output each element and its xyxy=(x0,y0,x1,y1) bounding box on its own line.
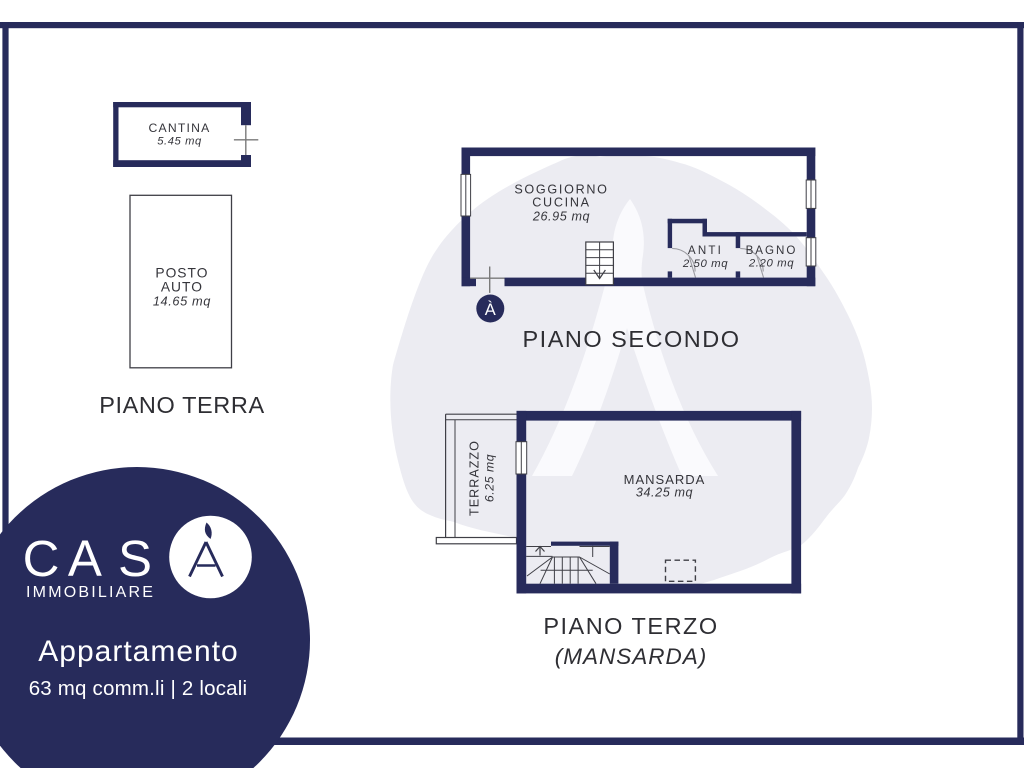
svg-text:26.95 mq: 26.95 mq xyxy=(532,210,590,224)
svg-text:SOGGIORNO: SOGGIORNO xyxy=(514,183,608,197)
svg-text:Appartamento: Appartamento xyxy=(38,635,238,668)
svg-text:6.25 mq: 6.25 mq xyxy=(483,454,497,502)
svg-text:34.25 mq: 34.25 mq xyxy=(636,486,693,500)
svg-text:CANTINA: CANTINA xyxy=(149,121,211,135)
svg-text:(MANSARDA): (MANSARDA) xyxy=(555,644,708,669)
svg-text:AUTO: AUTO xyxy=(161,280,203,295)
svg-text:2.20 mq: 2.20 mq xyxy=(748,258,794,270)
svg-text:63 mq comm.li | 2 locali: 63 mq comm.li | 2 locali xyxy=(29,677,248,700)
svg-text:TERRAZZO: TERRAZZO xyxy=(468,440,482,516)
svg-text:PIANO TERRA: PIANO TERRA xyxy=(99,392,264,418)
svg-text:A: A xyxy=(68,530,102,587)
svg-text:À: À xyxy=(485,300,496,319)
svg-text:14.65 mq: 14.65 mq xyxy=(153,294,211,309)
svg-text:ANTI: ANTI xyxy=(688,244,723,257)
svg-text:BAGNO: BAGNO xyxy=(746,244,798,257)
svg-text:5.45 mq: 5.45 mq xyxy=(157,136,202,148)
svg-text:PIANO SECONDO: PIANO SECONDO xyxy=(523,326,741,352)
svg-text:CUCINA: CUCINA xyxy=(532,196,590,210)
svg-text:2.50 mq: 2.50 mq xyxy=(682,258,728,270)
svg-text:IMMOBILIARE: IMMOBILIARE xyxy=(26,584,155,601)
svg-text:S: S xyxy=(118,530,152,587)
svg-text:C: C xyxy=(23,530,60,587)
svg-text:PIANO TERZO: PIANO TERZO xyxy=(543,613,718,639)
svg-text:POSTO: POSTO xyxy=(155,266,208,281)
